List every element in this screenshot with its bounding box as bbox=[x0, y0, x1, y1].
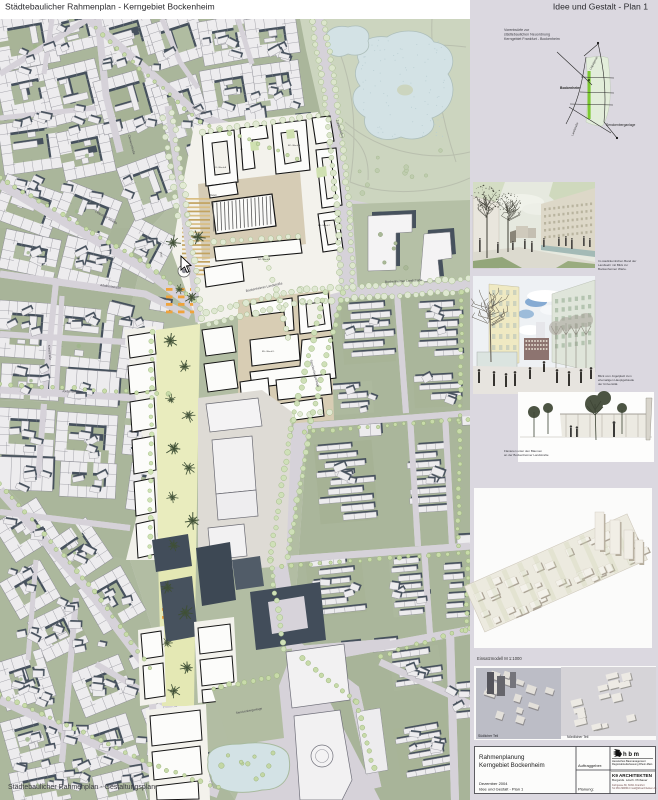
svg-text:Depot: Depot bbox=[210, 194, 217, 197]
svg-text:Idee und Gestalt - Plan 1: Idee und Gestalt - Plan 1 bbox=[479, 787, 524, 792]
svg-text:Regionalniederlassung Rhein-Ma: Regionalniederlassung Rhein-Main bbox=[612, 762, 653, 766]
svg-text:B2 - Block B: B2 - Block B bbox=[288, 145, 301, 147]
svg-text:der Universität.: der Universität. bbox=[598, 382, 618, 386]
svg-text:Tel 069 299869-0 mail@k9-arch: Tel 069 299869-0 mail@k9-architekten.de bbox=[612, 787, 657, 790]
svg-text:Städtebaulicher Rahmenplan - G: Städtebaulicher Rahmenplan - Gestaltungs… bbox=[8, 784, 155, 791]
svg-text:Planung:: Planung: bbox=[578, 787, 594, 792]
svg-text:B1 - Block A: B1 - Block A bbox=[214, 166, 226, 169]
svg-text:Einsatzmodell M 1:1000: Einsatzmodell M 1:1000 bbox=[477, 656, 522, 661]
svg-text:Städtebaulicher Rahmenplan - K: Städtebaulicher Rahmenplan - Kerngebiet … bbox=[5, 2, 215, 12]
svg-text:Bockenheimer Warte.: Bockenheimer Warte. bbox=[598, 267, 627, 271]
svg-text:Dezember 2004: Dezember 2004 bbox=[479, 781, 508, 786]
svg-text:Südlicher Teil: Südlicher Teil bbox=[478, 734, 498, 738]
svg-text:Rahmenplanung: Rahmenplanung bbox=[479, 754, 525, 761]
svg-text:Idee und Gestalt - Plan 1: Idee und Gestalt - Plan 1 bbox=[553, 2, 648, 12]
svg-text:Senckenberganlage: Senckenberganlage bbox=[606, 123, 635, 127]
svg-text:B5 - Block D: B5 - Block D bbox=[262, 351, 275, 353]
svg-text:B3 - Block C: B3 - Block C bbox=[318, 225, 331, 227]
svg-text:Borgards. Lösch. Piribauer: Borgards. Lösch. Piribauer bbox=[612, 778, 648, 782]
svg-text:VII: VII bbox=[240, 149, 243, 151]
svg-text:an der Bockenheimer Landstraße: an der Bockenheimer Landstraße bbox=[504, 453, 549, 457]
svg-text:Kerngebiet Bockenheim: Kerngebiet Bockenheim bbox=[479, 762, 545, 769]
svg-text:städtebaulichen Neuordnung: städtebaulichen Neuordnung bbox=[504, 32, 550, 36]
svg-text:Kerngebiet Frankfurt - Bockenh: Kerngebiet Frankfurt - Bockenheim bbox=[504, 37, 560, 41]
svg-text:B4 - Block B: B4 - Block B bbox=[258, 259, 271, 261]
svg-text:h b m: h b m bbox=[623, 752, 639, 758]
svg-text:Auftraggeber:: Auftraggeber: bbox=[578, 763, 602, 768]
svg-text:Bockenheim: Bockenheim bbox=[560, 86, 580, 90]
svg-text:Nördlicher Teil: Nördlicher Teil bbox=[567, 735, 589, 739]
svg-text:Vorentwürfe zur: Vorentwürfe zur bbox=[504, 28, 530, 32]
